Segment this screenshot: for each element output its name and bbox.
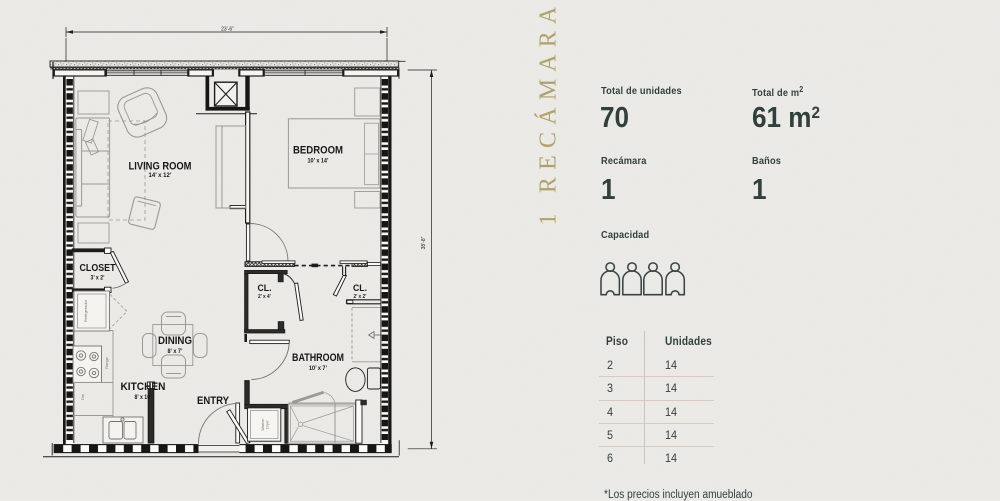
svg-text:10’ x 14’: 10’ x 14’ <box>308 157 329 164</box>
svg-text:3’ x 2’: 3’ x 2’ <box>91 275 105 282</box>
svg-text:KITCHEN: KITCHEN <box>121 381 166 393</box>
svg-text:8’ x 10’: 8’ x 10’ <box>135 394 152 401</box>
svg-text:2’ x 2’: 2’ x 2’ <box>354 294 367 300</box>
svg-text:DINING: DINING <box>158 335 192 347</box>
svg-text:LIVING ROOM: LIVING ROOM <box>129 160 192 172</box>
svg-text:38’-8”: 38’-8” <box>421 236 427 249</box>
svg-text:CL.: CL. <box>258 283 272 294</box>
svg-text:BATHROOM: BATHROOM <box>292 352 344 364</box>
svg-text:CL.: CL. <box>353 283 367 294</box>
svg-text:23’-6”: 23’-6” <box>221 26 234 32</box>
svg-text:Dw: Dw <box>80 394 85 400</box>
svg-text:BEDROOM: BEDROOM <box>293 145 343 157</box>
svg-text:14’ x 12’: 14’ x 12’ <box>149 173 172 179</box>
svg-text:Dryer: Dryer <box>266 419 270 429</box>
svg-text:Range: Range <box>104 356 109 369</box>
svg-text:2’ x 4’: 2’ x 4’ <box>258 294 271 300</box>
svg-text:8’ x 7’: 8’ x 7’ <box>168 348 183 355</box>
svg-text:Washer: Washer <box>261 418 265 431</box>
svg-text:ENTRY: ENTRY <box>197 395 230 407</box>
svg-text:CLOSET: CLOSET <box>80 263 116 274</box>
svg-text:Refrigerador: Refrigerador <box>83 299 88 322</box>
svg-text:10’ x 7’: 10’ x 7’ <box>309 365 327 372</box>
